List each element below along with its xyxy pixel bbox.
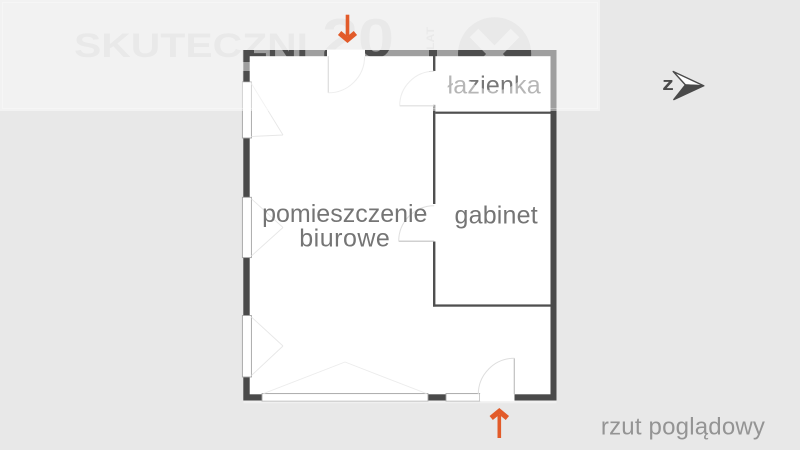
svg-text:rzut poglądowy: rzut poglądowy bbox=[601, 413, 765, 440]
svg-text:z: z bbox=[662, 74, 674, 94]
svg-text:gabinet: gabinet bbox=[454, 202, 537, 230]
svg-text:biurowe: biurowe bbox=[299, 225, 390, 253]
